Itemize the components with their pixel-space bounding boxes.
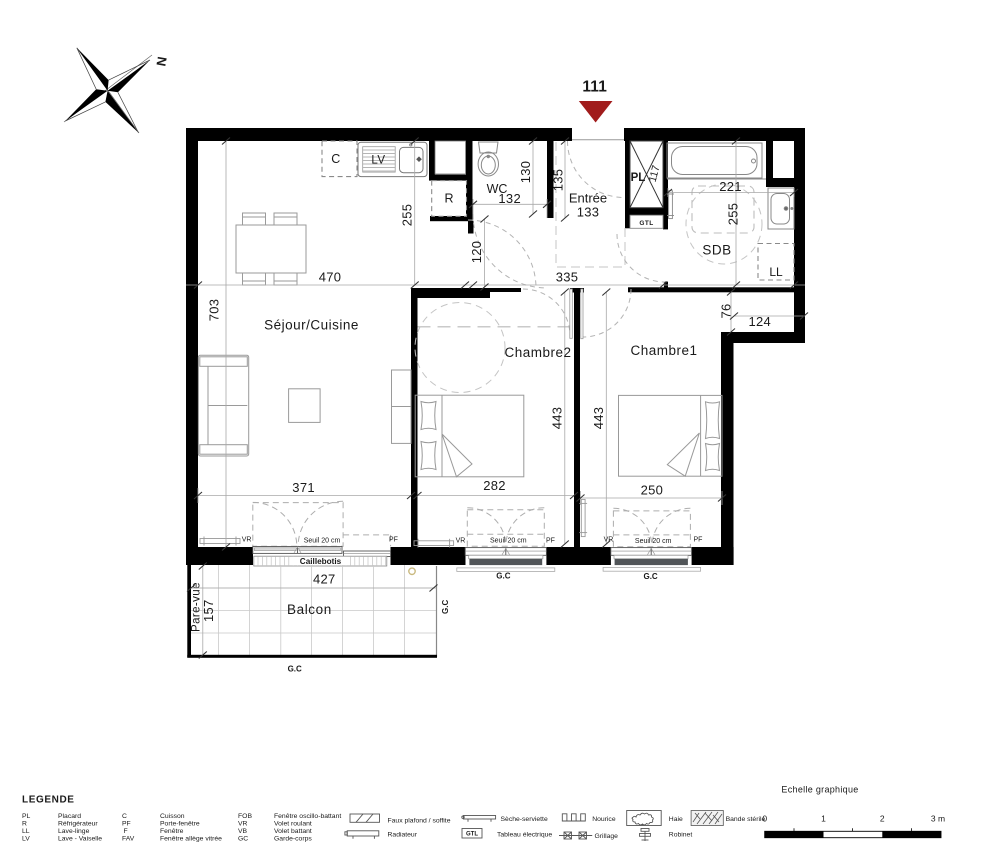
svg-text:Haie: Haie bbox=[669, 816, 683, 823]
svg-text:1: 1 bbox=[821, 814, 826, 824]
svg-text:282: 282 bbox=[483, 478, 506, 493]
svg-text:Fenêtre: Fenêtre bbox=[160, 828, 184, 835]
svg-text:G.C: G.C bbox=[496, 572, 510, 581]
svg-text:Nourice: Nourice bbox=[592, 816, 616, 823]
svg-text:Echelle graphique: Echelle graphique bbox=[781, 785, 858, 795]
svg-text:Grillage: Grillage bbox=[595, 833, 619, 840]
svg-text:Cuisson: Cuisson bbox=[160, 813, 185, 820]
svg-text:443: 443 bbox=[550, 407, 565, 430]
svg-text:130: 130 bbox=[518, 161, 533, 184]
svg-text:Fenêtre oscillo-battant: Fenêtre oscillo-battant bbox=[274, 813, 341, 820]
svg-text:335: 335 bbox=[556, 270, 579, 285]
svg-text:Séjour/Cuisine: Séjour/Cuisine bbox=[264, 318, 359, 333]
svg-text:R: R bbox=[444, 192, 453, 206]
svg-text:Seuil 20 cm: Seuil 20 cm bbox=[635, 538, 672, 545]
svg-text:GTL: GTL bbox=[466, 832, 478, 838]
svg-text:G.C: G.C bbox=[643, 572, 657, 581]
svg-text:PF: PF bbox=[694, 537, 703, 544]
svg-text:120: 120 bbox=[469, 241, 484, 264]
svg-text:135: 135 bbox=[551, 169, 566, 192]
svg-text:Garde-corps: Garde-corps bbox=[274, 836, 312, 843]
svg-text:G.C: G.C bbox=[288, 665, 302, 674]
svg-text:PL: PL bbox=[22, 813, 31, 820]
svg-text:PF: PF bbox=[389, 537, 398, 544]
svg-text:76: 76 bbox=[719, 303, 734, 318]
svg-text:111: 111 bbox=[582, 79, 607, 96]
svg-text:0: 0 bbox=[762, 814, 767, 824]
svg-text:2: 2 bbox=[880, 814, 885, 824]
svg-text:Tableau électrique: Tableau électrique bbox=[497, 832, 552, 839]
svg-text:VR: VR bbox=[604, 537, 614, 544]
svg-text:221: 221 bbox=[719, 179, 742, 194]
svg-text:VR: VR bbox=[456, 537, 466, 544]
svg-text:C: C bbox=[122, 813, 127, 820]
svg-text:Seuil 20 cm: Seuil 20 cm bbox=[304, 537, 341, 544]
svg-text:FOB: FOB bbox=[238, 813, 252, 820]
svg-text:443: 443 bbox=[591, 407, 606, 430]
svg-text:VR: VR bbox=[238, 821, 248, 828]
svg-text:Robinet: Robinet bbox=[669, 832, 693, 839]
svg-text:VB: VB bbox=[238, 828, 248, 835]
svg-text:Sèche-serviette: Sèche-serviette bbox=[501, 816, 548, 823]
svg-text:Volet roulant: Volet roulant bbox=[274, 821, 312, 828]
svg-text:Porte-fenêtre: Porte-fenêtre bbox=[160, 821, 200, 828]
svg-text:F: F bbox=[124, 828, 128, 835]
svg-text:GC: GC bbox=[238, 836, 248, 843]
svg-text:Placard: Placard bbox=[58, 813, 81, 820]
svg-text:GTL: GTL bbox=[639, 220, 653, 227]
svg-text:427: 427 bbox=[313, 572, 336, 587]
svg-text:WC: WC bbox=[487, 182, 508, 196]
svg-text:Bande stérile: Bande stérile bbox=[726, 816, 766, 823]
svg-text:124: 124 bbox=[749, 314, 772, 329]
svg-text:SDB: SDB bbox=[702, 243, 731, 258]
svg-text:PL: PL bbox=[631, 172, 646, 184]
svg-text:C: C bbox=[331, 152, 341, 166]
svg-text:Radiateur: Radiateur bbox=[388, 832, 418, 839]
svg-text:3 m: 3 m bbox=[931, 814, 945, 824]
svg-text:371: 371 bbox=[292, 480, 315, 495]
svg-text:703: 703 bbox=[207, 299, 222, 322]
svg-text:Réfrigérateur: Réfrigérateur bbox=[58, 821, 98, 828]
svg-text:Volet battant: Volet battant bbox=[274, 828, 312, 835]
svg-text:Seuil 20 cm: Seuil 20 cm bbox=[490, 538, 527, 545]
svg-text:FAV: FAV bbox=[122, 836, 135, 843]
svg-text:Balcon: Balcon bbox=[287, 602, 332, 617]
svg-text:LV: LV bbox=[22, 836, 30, 843]
svg-text:G.C: G.C bbox=[441, 600, 450, 614]
svg-text:LEGENDE: LEGENDE bbox=[22, 795, 75, 806]
svg-text:Chambre2: Chambre2 bbox=[504, 345, 571, 360]
svg-text:Lave-linge: Lave-linge bbox=[58, 828, 90, 835]
svg-text:LV: LV bbox=[371, 155, 385, 167]
svg-text:250: 250 bbox=[641, 483, 664, 498]
svg-text:157: 157 bbox=[201, 599, 216, 622]
svg-text:VR: VR bbox=[242, 537, 252, 544]
svg-text:Entrée: Entrée bbox=[569, 191, 607, 206]
svg-text:255: 255 bbox=[726, 203, 741, 226]
svg-text:Lave - Vaiselle: Lave - Vaiselle bbox=[58, 836, 102, 843]
svg-text:Faux plafond / soffite: Faux plafond / soffite bbox=[388, 818, 451, 825]
svg-text:Chambre1: Chambre1 bbox=[630, 343, 697, 358]
svg-text:133: 133 bbox=[577, 205, 600, 220]
svg-text:255: 255 bbox=[400, 204, 415, 227]
svg-text:470: 470 bbox=[319, 270, 342, 285]
svg-text:LL: LL bbox=[769, 265, 783, 279]
svg-text:PF: PF bbox=[122, 821, 131, 828]
svg-text:Caillebotis: Caillebotis bbox=[300, 557, 342, 566]
svg-text:PF: PF bbox=[546, 537, 555, 544]
svg-text:R: R bbox=[22, 821, 27, 828]
svg-text:LL: LL bbox=[22, 828, 30, 835]
svg-text:Fenêtre allège vitrée: Fenêtre allège vitrée bbox=[160, 836, 222, 843]
svg-text:Pare-vue: Pare-vue bbox=[191, 582, 203, 632]
